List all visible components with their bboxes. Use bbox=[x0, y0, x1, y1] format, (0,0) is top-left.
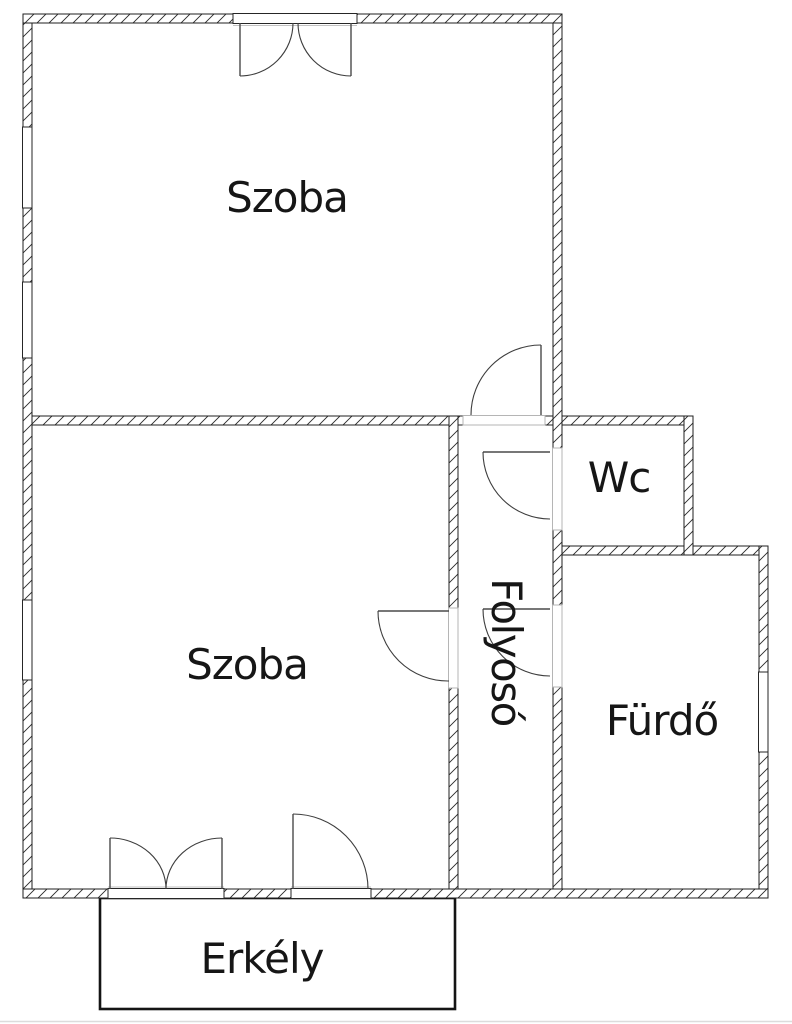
label-erkely: Erkély bbox=[201, 934, 324, 983]
windows bbox=[23, 127, 769, 752]
floor-plan-page: Szoba Szoba Wc Folyosó Fürdő Erkély bbox=[0, 0, 792, 1024]
window-top-double bbox=[233, 14, 357, 77]
label-wc: Wc bbox=[588, 453, 651, 502]
window-left-3 bbox=[23, 600, 33, 680]
door-top-room bbox=[463, 345, 545, 425]
walls bbox=[23, 14, 768, 898]
wall-wc-right bbox=[684, 416, 693, 555]
label-folyoso: Folyosó bbox=[482, 578, 531, 726]
door-balcony-single bbox=[291, 814, 371, 899]
label-szoba-top: Szoba bbox=[226, 173, 348, 222]
floor-plan: Szoba Szoba Wc Folyosó Fürdő Erkély bbox=[0, 0, 792, 1024]
door-bottom-room bbox=[378, 608, 458, 688]
door-balcony-double bbox=[108, 838, 224, 899]
door-wc bbox=[483, 448, 562, 530]
window-bath-right bbox=[759, 672, 769, 752]
window-left-2 bbox=[23, 282, 33, 358]
label-furdo: Fürdő bbox=[606, 696, 718, 745]
wall-bath-top bbox=[553, 546, 768, 555]
wall-mid bbox=[23, 416, 693, 425]
window-left-1 bbox=[23, 127, 33, 208]
label-szoba-bottom: Szoba bbox=[186, 640, 308, 689]
